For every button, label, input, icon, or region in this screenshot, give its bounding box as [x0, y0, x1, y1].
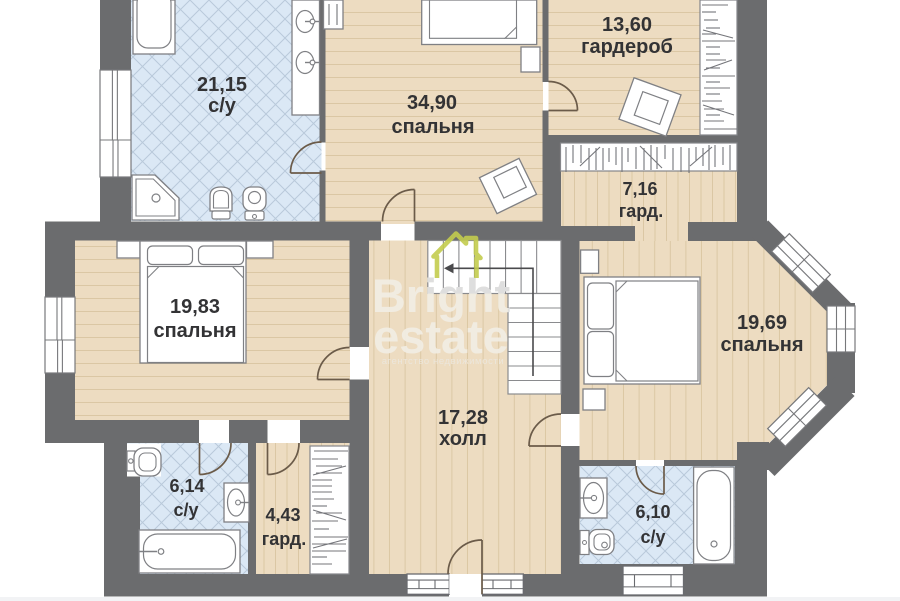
- svg-text:4,43: 4,43: [265, 505, 300, 525]
- svg-text:6,14: 6,14: [169, 476, 204, 496]
- svg-text:гард.: гард.: [619, 201, 663, 221]
- svg-text:гард.: гард.: [262, 529, 306, 549]
- svg-text:спальня: спальня: [391, 116, 474, 138]
- svg-text:21,15: 21,15: [197, 74, 247, 96]
- svg-text:с/у: с/у: [173, 500, 198, 520]
- svg-text:17,28: 17,28: [438, 407, 488, 429]
- svg-text:гардероб: гардероб: [581, 36, 673, 58]
- svg-text:спальня: спальня: [153, 320, 236, 342]
- svg-text:агентство недвижимости: агентство недвижимости: [382, 356, 505, 367]
- svg-text:7,16: 7,16: [622, 179, 657, 199]
- svg-text:34,90: 34,90: [407, 92, 457, 114]
- svg-text:холл: холл: [439, 428, 487, 450]
- svg-text:6,10: 6,10: [635, 502, 670, 522]
- svg-text:с/у: с/у: [640, 527, 665, 547]
- svg-text:спальня: спальня: [720, 334, 803, 356]
- svg-text:с/у: с/у: [208, 95, 237, 117]
- svg-text:19,83: 19,83: [170, 296, 220, 318]
- svg-text:13,60: 13,60: [602, 14, 652, 36]
- svg-text:19,69: 19,69: [737, 312, 787, 334]
